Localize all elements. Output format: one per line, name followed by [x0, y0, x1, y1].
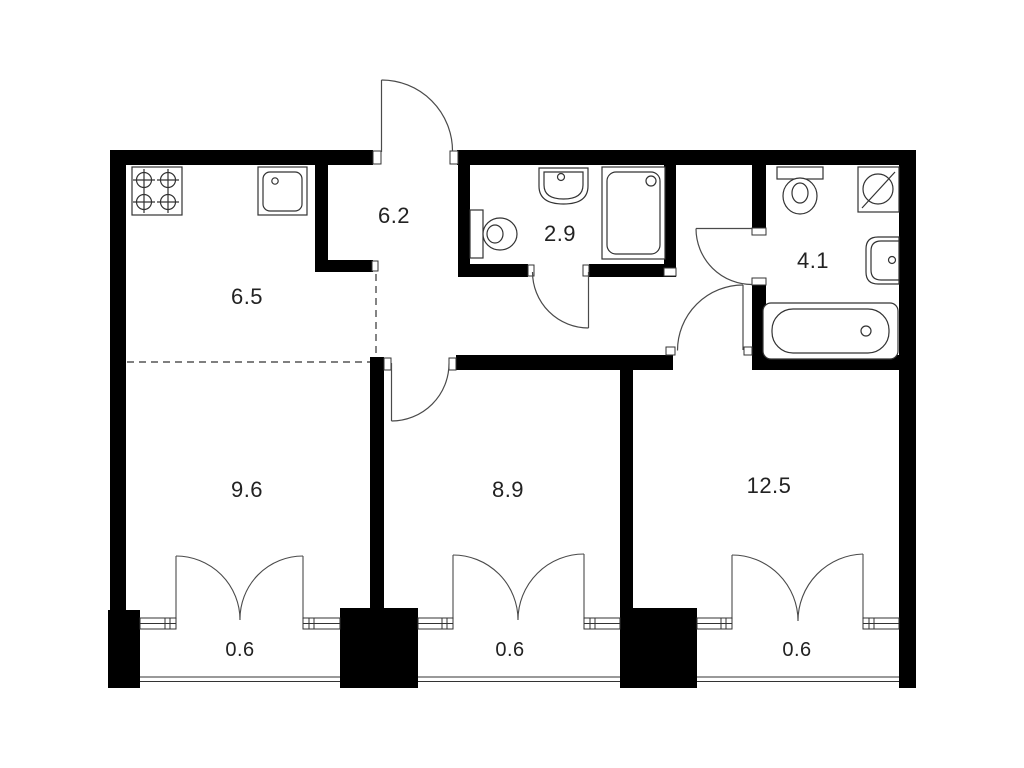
area-label-balcony-middle: 0.6	[495, 639, 524, 661]
window	[418, 618, 453, 629]
washbasin-icon	[539, 168, 588, 204]
area-label-kitchen-living: 6.5	[231, 284, 263, 309]
wall-corner-bottom-left	[108, 610, 140, 688]
window	[584, 618, 620, 629]
wall-shower-right	[664, 165, 676, 268]
wall-right	[899, 150, 916, 688]
window	[303, 618, 340, 629]
bedroom-right-door-arc	[678, 285, 744, 351]
shower-tray-icon	[602, 167, 665, 259]
area-label-balcony-left: 0.6	[225, 639, 254, 661]
floor-plan-svg: 6.5 6.2 2.9 4.1 9.6 8.9 12.5 0.6 0.6 0.6	[0, 0, 1024, 768]
wall-shower-bottom-left	[458, 264, 528, 277]
wall-divider-mid-left	[370, 357, 384, 612]
kitchen-sink-icon	[258, 167, 307, 215]
balcony-outer-edge	[140, 677, 899, 682]
window	[140, 618, 176, 629]
wall-top-right	[457, 150, 916, 165]
washing-machine-icon	[858, 167, 899, 212]
floor-plan-page: 6.5 6.2 2.9 4.1 9.6 8.9 12.5 0.6 0.6 0.6	[0, 0, 1024, 768]
window	[697, 618, 732, 629]
pillar-balcony-2	[620, 608, 697, 688]
wall-shower-left	[458, 165, 470, 277]
washbasin-icon	[866, 237, 899, 284]
wall-hall-south	[456, 355, 673, 370]
area-label-bedroom-left: 9.6	[231, 477, 263, 502]
wall-top-left	[110, 150, 373, 165]
bathtub-icon	[763, 303, 898, 359]
wall-bath-left-top	[752, 165, 766, 228]
wall-kitchen-vert	[315, 165, 328, 262]
windows	[140, 618, 899, 629]
area-label-bathroom: 4.1	[797, 248, 829, 273]
toilet-icon	[777, 167, 823, 214]
wall-kitchen-horiz	[315, 260, 373, 272]
toilet-icon	[470, 210, 517, 258]
balcony-middle-door-arcs	[453, 554, 584, 620]
bathroom-door-arc	[696, 229, 753, 285]
pillar-balcony-1	[340, 608, 418, 688]
stove-icon	[132, 167, 182, 215]
wall-left	[110, 150, 126, 612]
balcony-right-door-arcs	[732, 554, 863, 621]
area-label-bedroom-right: 12.5	[747, 473, 792, 498]
wall-shower-bottom-right	[589, 264, 676, 277]
balcony-french-doors	[176, 554, 863, 621]
window	[863, 618, 899, 629]
entrance-door-arc	[382, 80, 453, 152]
area-label-hallway: 6.2	[378, 203, 410, 228]
shower-room-door-arc	[533, 272, 589, 328]
fixtures	[132, 167, 899, 359]
area-label-shower-room: 2.9	[544, 221, 576, 246]
balcony-left-door-arcs	[176, 556, 303, 620]
bedroom-middle-door-arc	[392, 363, 450, 421]
wall-divider-mid-right	[620, 355, 633, 612]
area-label-bedroom-middle: 8.9	[492, 477, 524, 502]
area-label-balcony-right: 0.6	[782, 639, 811, 661]
